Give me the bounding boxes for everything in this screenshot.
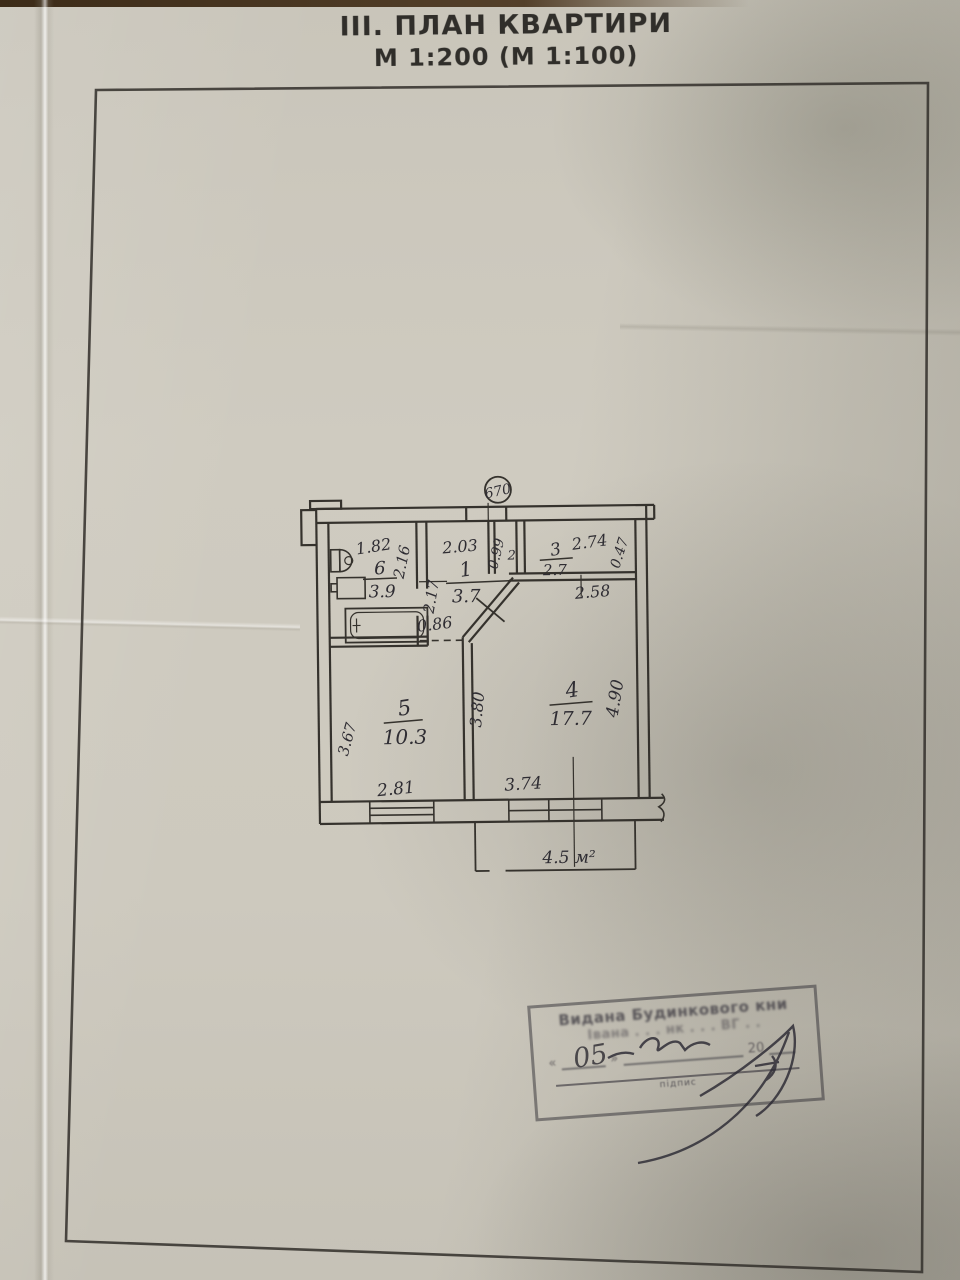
stamp-year: 20	[747, 1041, 765, 1057]
stamp-blank-year	[769, 1039, 796, 1055]
stamp-quote-open: «	[548, 1056, 557, 1072]
stamp-blank-month	[623, 1043, 744, 1066]
rubber-stamp: Видана Будинкового кни Івана . . . нк . …	[527, 985, 825, 1122]
stamp-blank-day	[561, 1053, 606, 1070]
table-edge	[0, 0, 749, 7]
stamp-quote-close: »	[610, 1051, 619, 1067]
fold-crease-vertical	[34, 0, 54, 1280]
scanned-page: { "page": { "title_line1": "III. ПЛАН КВ…	[0, 0, 960, 1280]
title-block: III. ПЛАН КВАРТИРИ М 1:200 (М 1:100)	[0, 5, 960, 76]
